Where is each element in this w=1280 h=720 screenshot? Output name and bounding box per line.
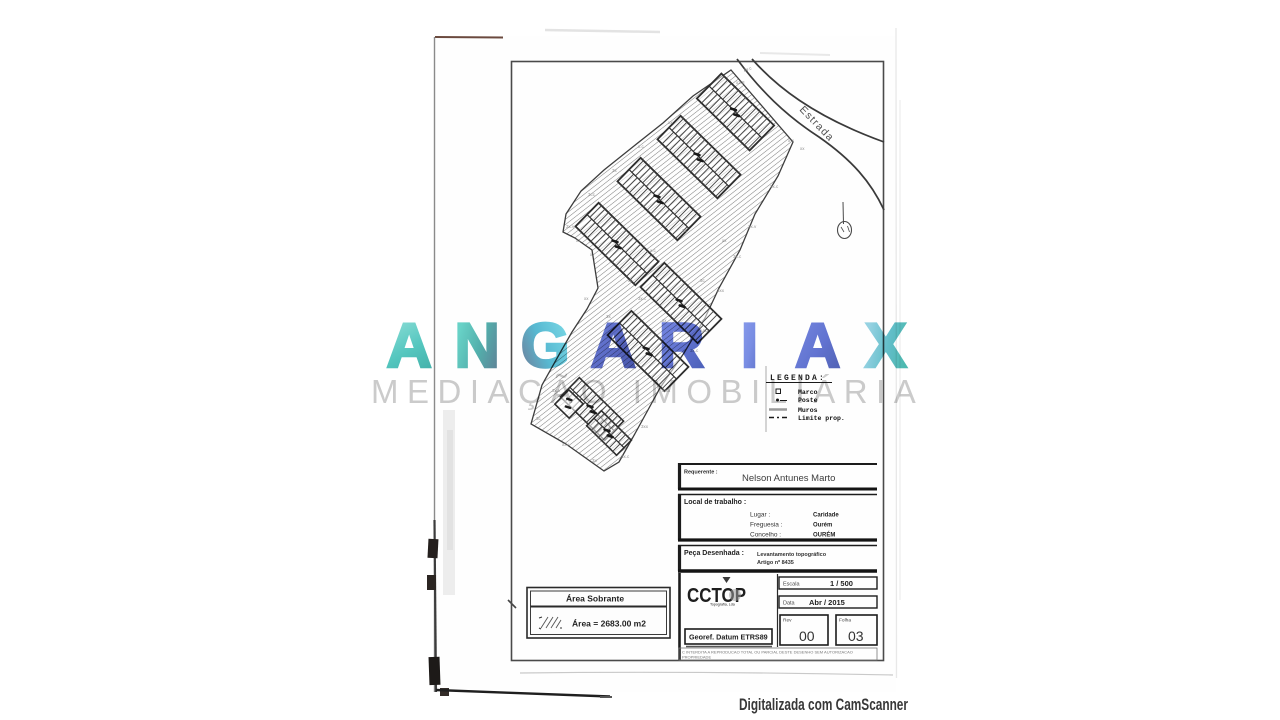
svg-text:G: G [521,311,570,381]
svg-text:R: R [659,311,705,381]
svg-text:A: A [795,311,841,381]
svg-text:I: I [741,311,759,381]
svg-text:N: N [454,311,500,381]
svg-text:X: X [865,311,907,381]
svg-text:A: A [591,311,637,381]
svg-text:A: A [386,311,432,381]
